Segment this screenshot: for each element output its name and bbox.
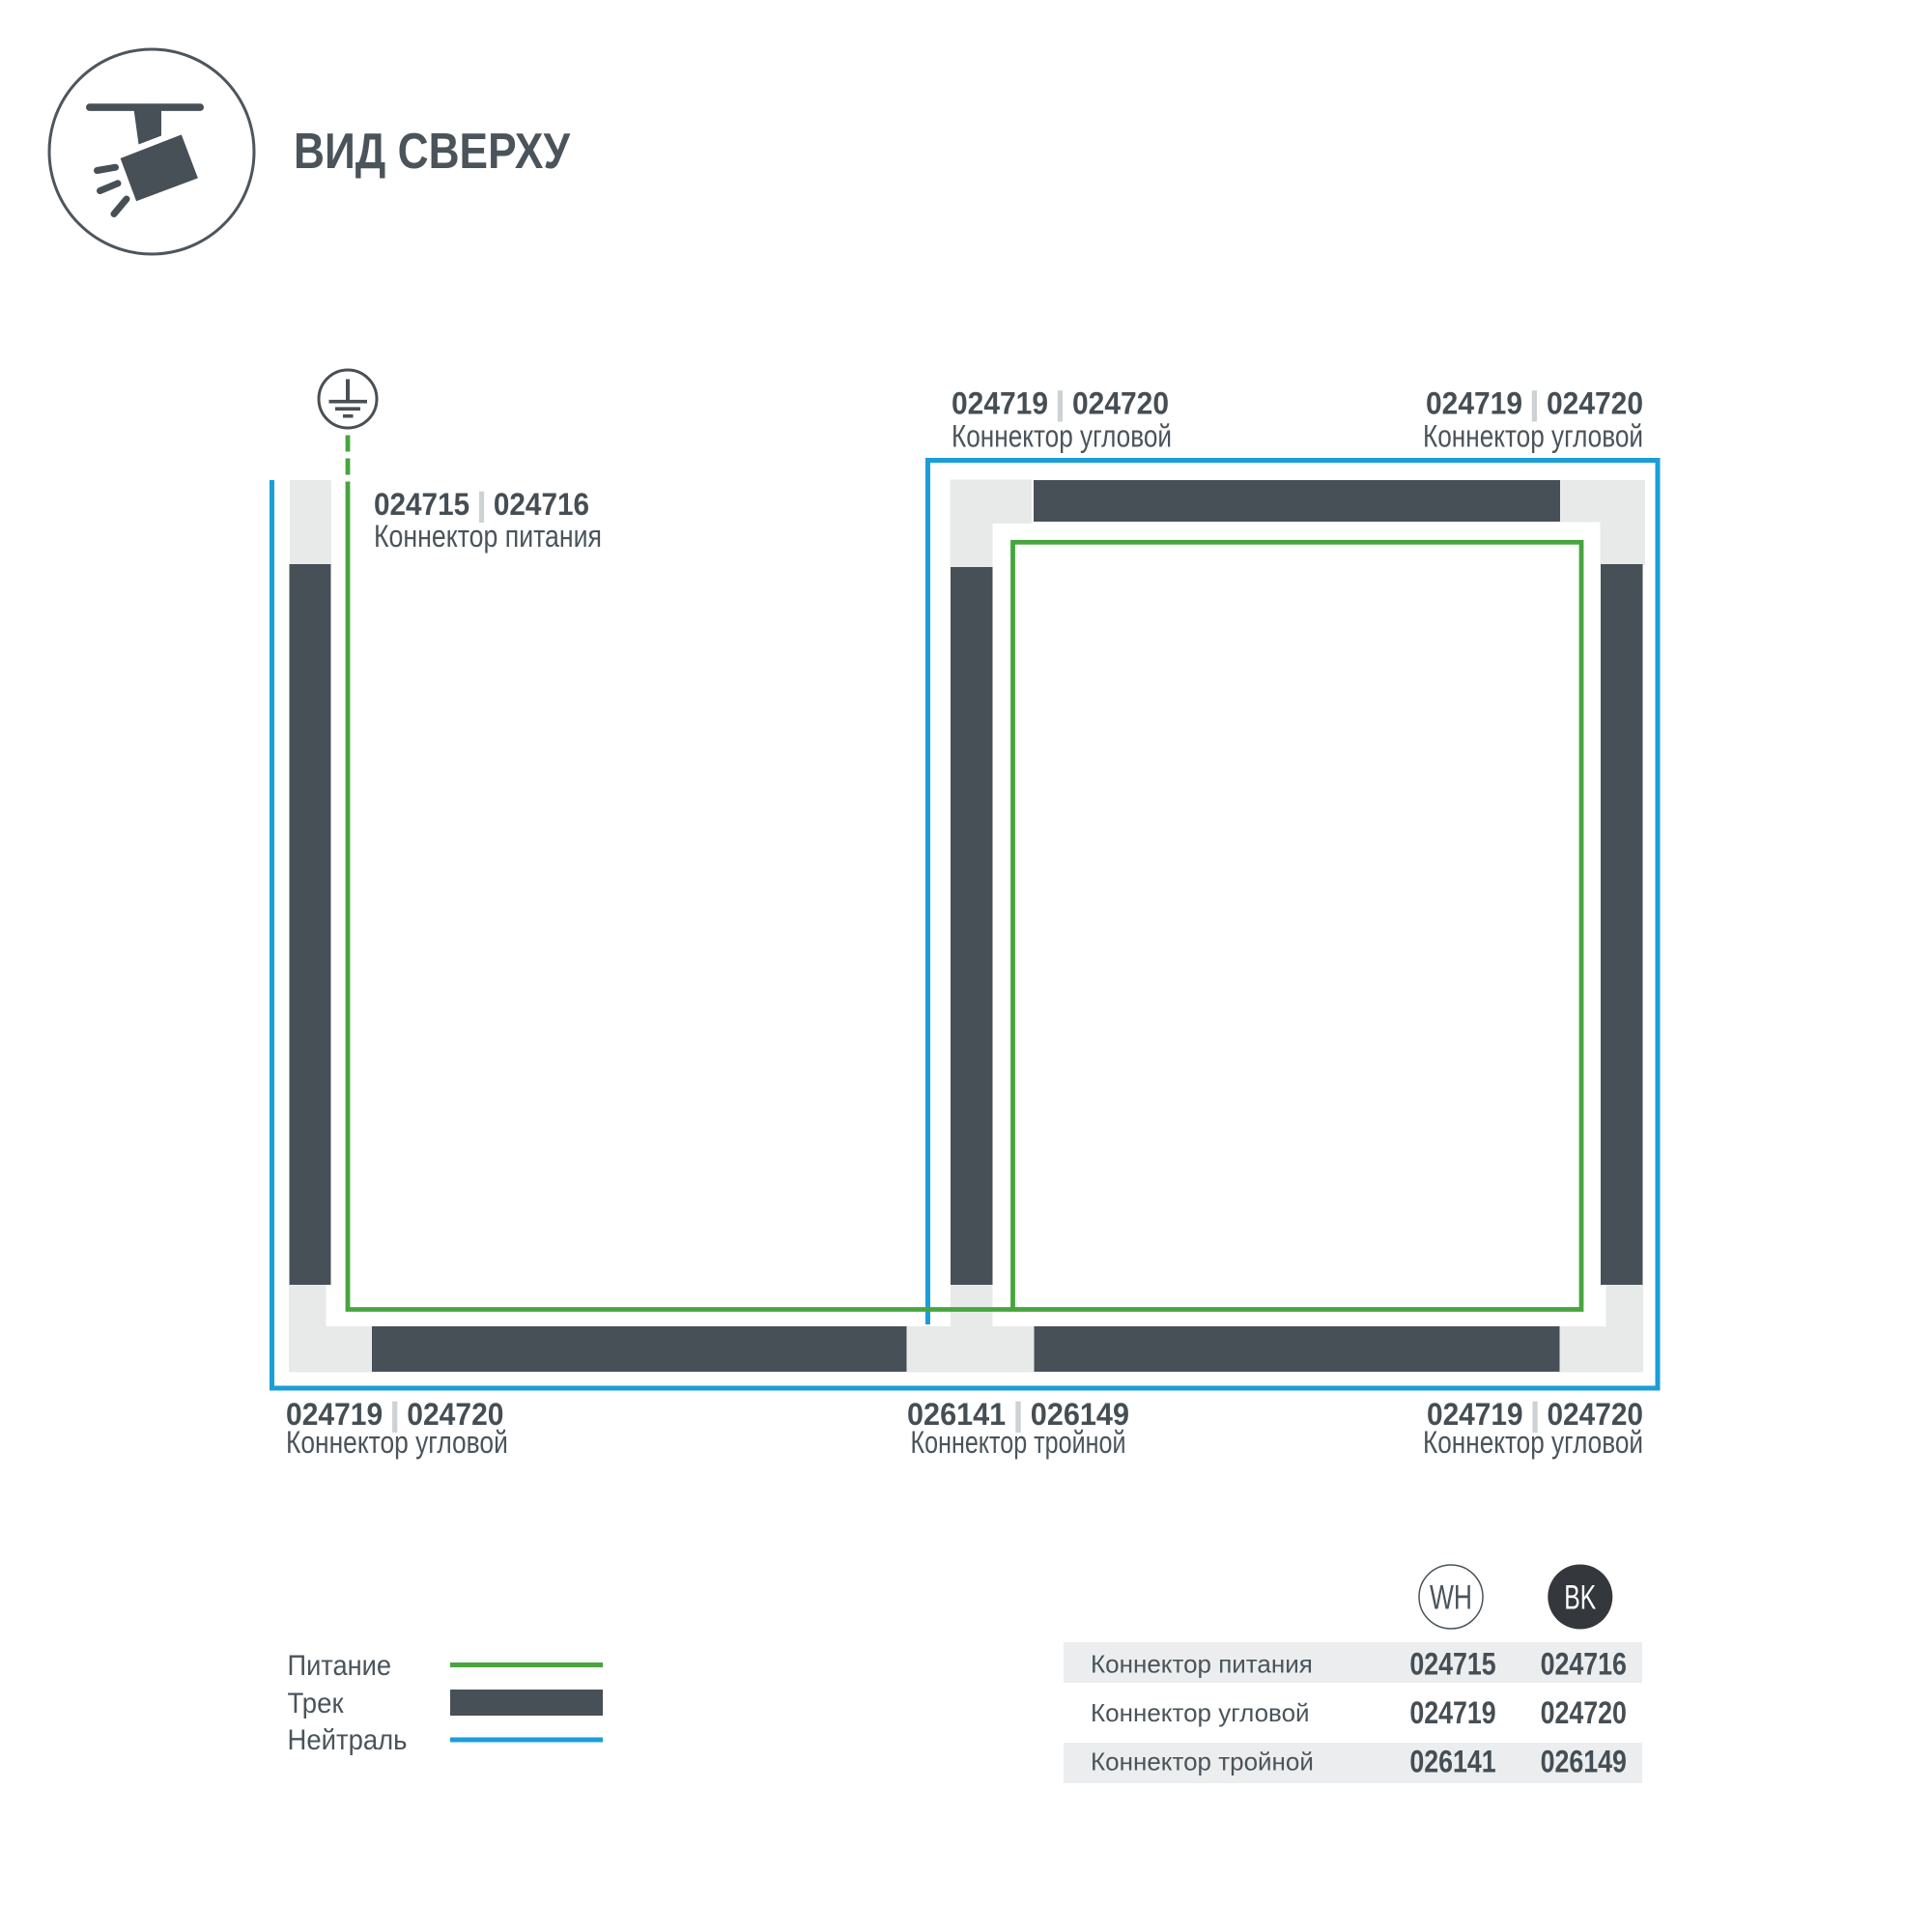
svg-text:Коннектор угловой: Коннектор угловой [1423,419,1643,454]
svg-text:024716: 024716 [1541,1647,1627,1682]
svg-text:Коннектор угловой: Коннектор угловой [286,1425,508,1460]
svg-text:Коннектор тройной: Коннектор тройной [1091,1747,1314,1776]
svg-text:024719: 024719 [1409,1695,1495,1730]
svg-text:026149: 026149 [1541,1745,1627,1779]
svg-text:Коннектор питания: Коннектор питания [1091,1649,1313,1678]
svg-text:Коннектор угловой: Коннектор угловой [1091,1698,1310,1727]
svg-text:024720: 024720 [1541,1695,1627,1730]
svg-text:WH: WH [1430,1579,1472,1617]
svg-text:Коннектор тройной: Коннектор тройной [911,1425,1126,1460]
svg-text:024719 | 024720: 024719 | 024720 [1426,386,1643,421]
svg-text:Коннектор угловой: Коннектор угловой [952,419,1172,454]
svg-text:024715 | 024716: 024715 | 024716 [374,487,589,522]
svg-text:Коннектор питания: Коннектор питания [374,519,602,554]
svg-text:024715: 024715 [1409,1647,1495,1682]
svg-text:Нейтраль: Нейтраль [288,1724,408,1756]
svg-text:Коннектор угловой: Коннектор угловой [1423,1425,1643,1460]
svg-text:Трек: Трек [288,1688,345,1719]
svg-text:ВИД СВЕРХУ: ВИД СВЕРХУ [294,124,571,180]
svg-text:Питание: Питание [288,1650,392,1682]
svg-text:BK: BK [1564,1579,1596,1617]
svg-text:026141: 026141 [1409,1745,1495,1779]
svg-text:024719 | 024720: 024719 | 024720 [952,386,1169,421]
